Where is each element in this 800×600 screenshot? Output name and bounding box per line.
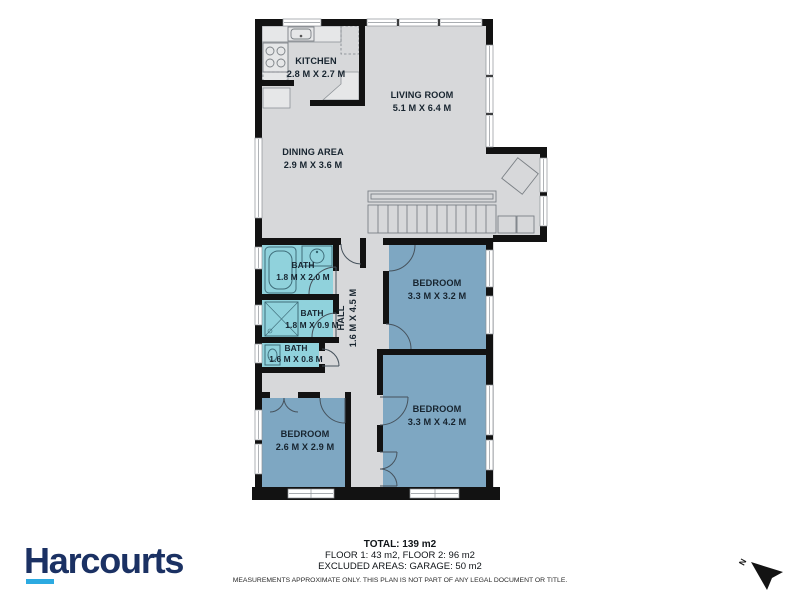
wall-segment	[493, 235, 547, 242]
window	[255, 305, 262, 325]
window	[288, 489, 334, 498]
wall-segment	[255, 238, 341, 245]
room-label-bedroom3: BEDROOM	[281, 429, 330, 439]
wall-segment	[310, 100, 365, 106]
wall-segment	[333, 238, 339, 271]
window	[486, 115, 493, 147]
wall-segment	[377, 349, 493, 355]
wall-segment	[345, 392, 351, 487]
window	[486, 385, 493, 435]
room-label-bedroom1: BEDROOM	[413, 278, 462, 288]
wall-segment	[377, 425, 383, 452]
wall-segment	[262, 392, 270, 398]
window	[486, 77, 493, 113]
room-label-bath3: BATH	[284, 343, 307, 353]
wall-segment	[383, 238, 493, 245]
room-dims-dining: 2.9 M X 3.6 M	[284, 160, 343, 170]
room-label-kitchen: KITCHEN	[295, 56, 337, 66]
window	[367, 19, 397, 26]
window	[540, 158, 547, 192]
north-label: N	[737, 557, 749, 567]
window	[399, 19, 438, 26]
north-arrow-icon	[751, 562, 783, 590]
wall-segment	[486, 147, 547, 154]
window	[440, 19, 482, 26]
room-label-bedroom2: BEDROOM	[413, 404, 462, 414]
wall-segment	[383, 271, 389, 324]
wall-segment	[298, 392, 320, 398]
disclaimer-text: MEASUREMENTS APPROXIMATE ONLY. THIS PLAN…	[0, 577, 800, 584]
excluded-areas-text: EXCLUDED AREAS: GARAGE: 50 m2	[0, 562, 800, 573]
room-dims-kitchen: 2.8 M X 2.7 M	[287, 69, 346, 79]
wall-segment	[262, 367, 325, 373]
wall-segment	[359, 26, 365, 106]
area-summary: TOTAL: 139 m2 FLOOR 1: 43 m2, FLOOR 2: 9…	[0, 539, 800, 584]
room-label-dining: DINING AREA	[282, 147, 344, 157]
window	[486, 250, 493, 287]
kitchen-counter-top	[262, 26, 341, 42]
wall-segment	[262, 80, 294, 86]
wall-segment	[319, 343, 325, 351]
upper-floor-area	[258, 22, 544, 240]
room-label-living: LIVING ROOM	[391, 90, 454, 100]
room-dims-hall: 1.6 M X 4.5 M	[348, 289, 358, 348]
room-label-bath1: BATH	[291, 260, 314, 270]
room-dims-bedroom2: 3.3 M X 4.2 M	[408, 417, 467, 427]
window	[255, 444, 262, 474]
window	[255, 344, 262, 363]
window	[255, 247, 262, 269]
window	[540, 196, 547, 226]
window	[486, 45, 493, 75]
wall-segment	[262, 294, 339, 300]
wall-segment	[377, 355, 383, 395]
window	[486, 296, 493, 334]
room-dims-bedroom1: 3.3 M X 3.2 M	[408, 291, 467, 301]
room-dims-bedroom3: 2.6 M X 2.9 M	[276, 442, 335, 452]
room-label-hall: HALL	[336, 305, 346, 330]
window	[255, 410, 262, 440]
window	[283, 19, 321, 26]
north-arrow: N	[728, 548, 792, 596]
room-dims-living: 5.1 M X 6.4 M	[393, 103, 452, 113]
room-label-bath2: BATH	[300, 308, 323, 318]
window	[410, 489, 459, 498]
room-dims-bath2: 1.8 M X 0.9 M	[285, 320, 338, 330]
floorplan-svg: KITCHEN 2.8 M X 2.7 M LIVING ROOM 5.1 M …	[0, 0, 800, 600]
room-dims-bath3: 1.6 M X 0.8 M	[269, 354, 322, 364]
window	[486, 440, 493, 470]
floorplan-page: KITCHEN 2.8 M X 2.7 M LIVING ROOM 5.1 M …	[0, 0, 800, 600]
total-area-text: TOTAL: 139 m2	[0, 539, 800, 550]
room-dims-bath1: 1.8 M X 2.0 M	[276, 272, 329, 282]
kitchen-closet	[263, 88, 290, 108]
window	[255, 138, 262, 218]
